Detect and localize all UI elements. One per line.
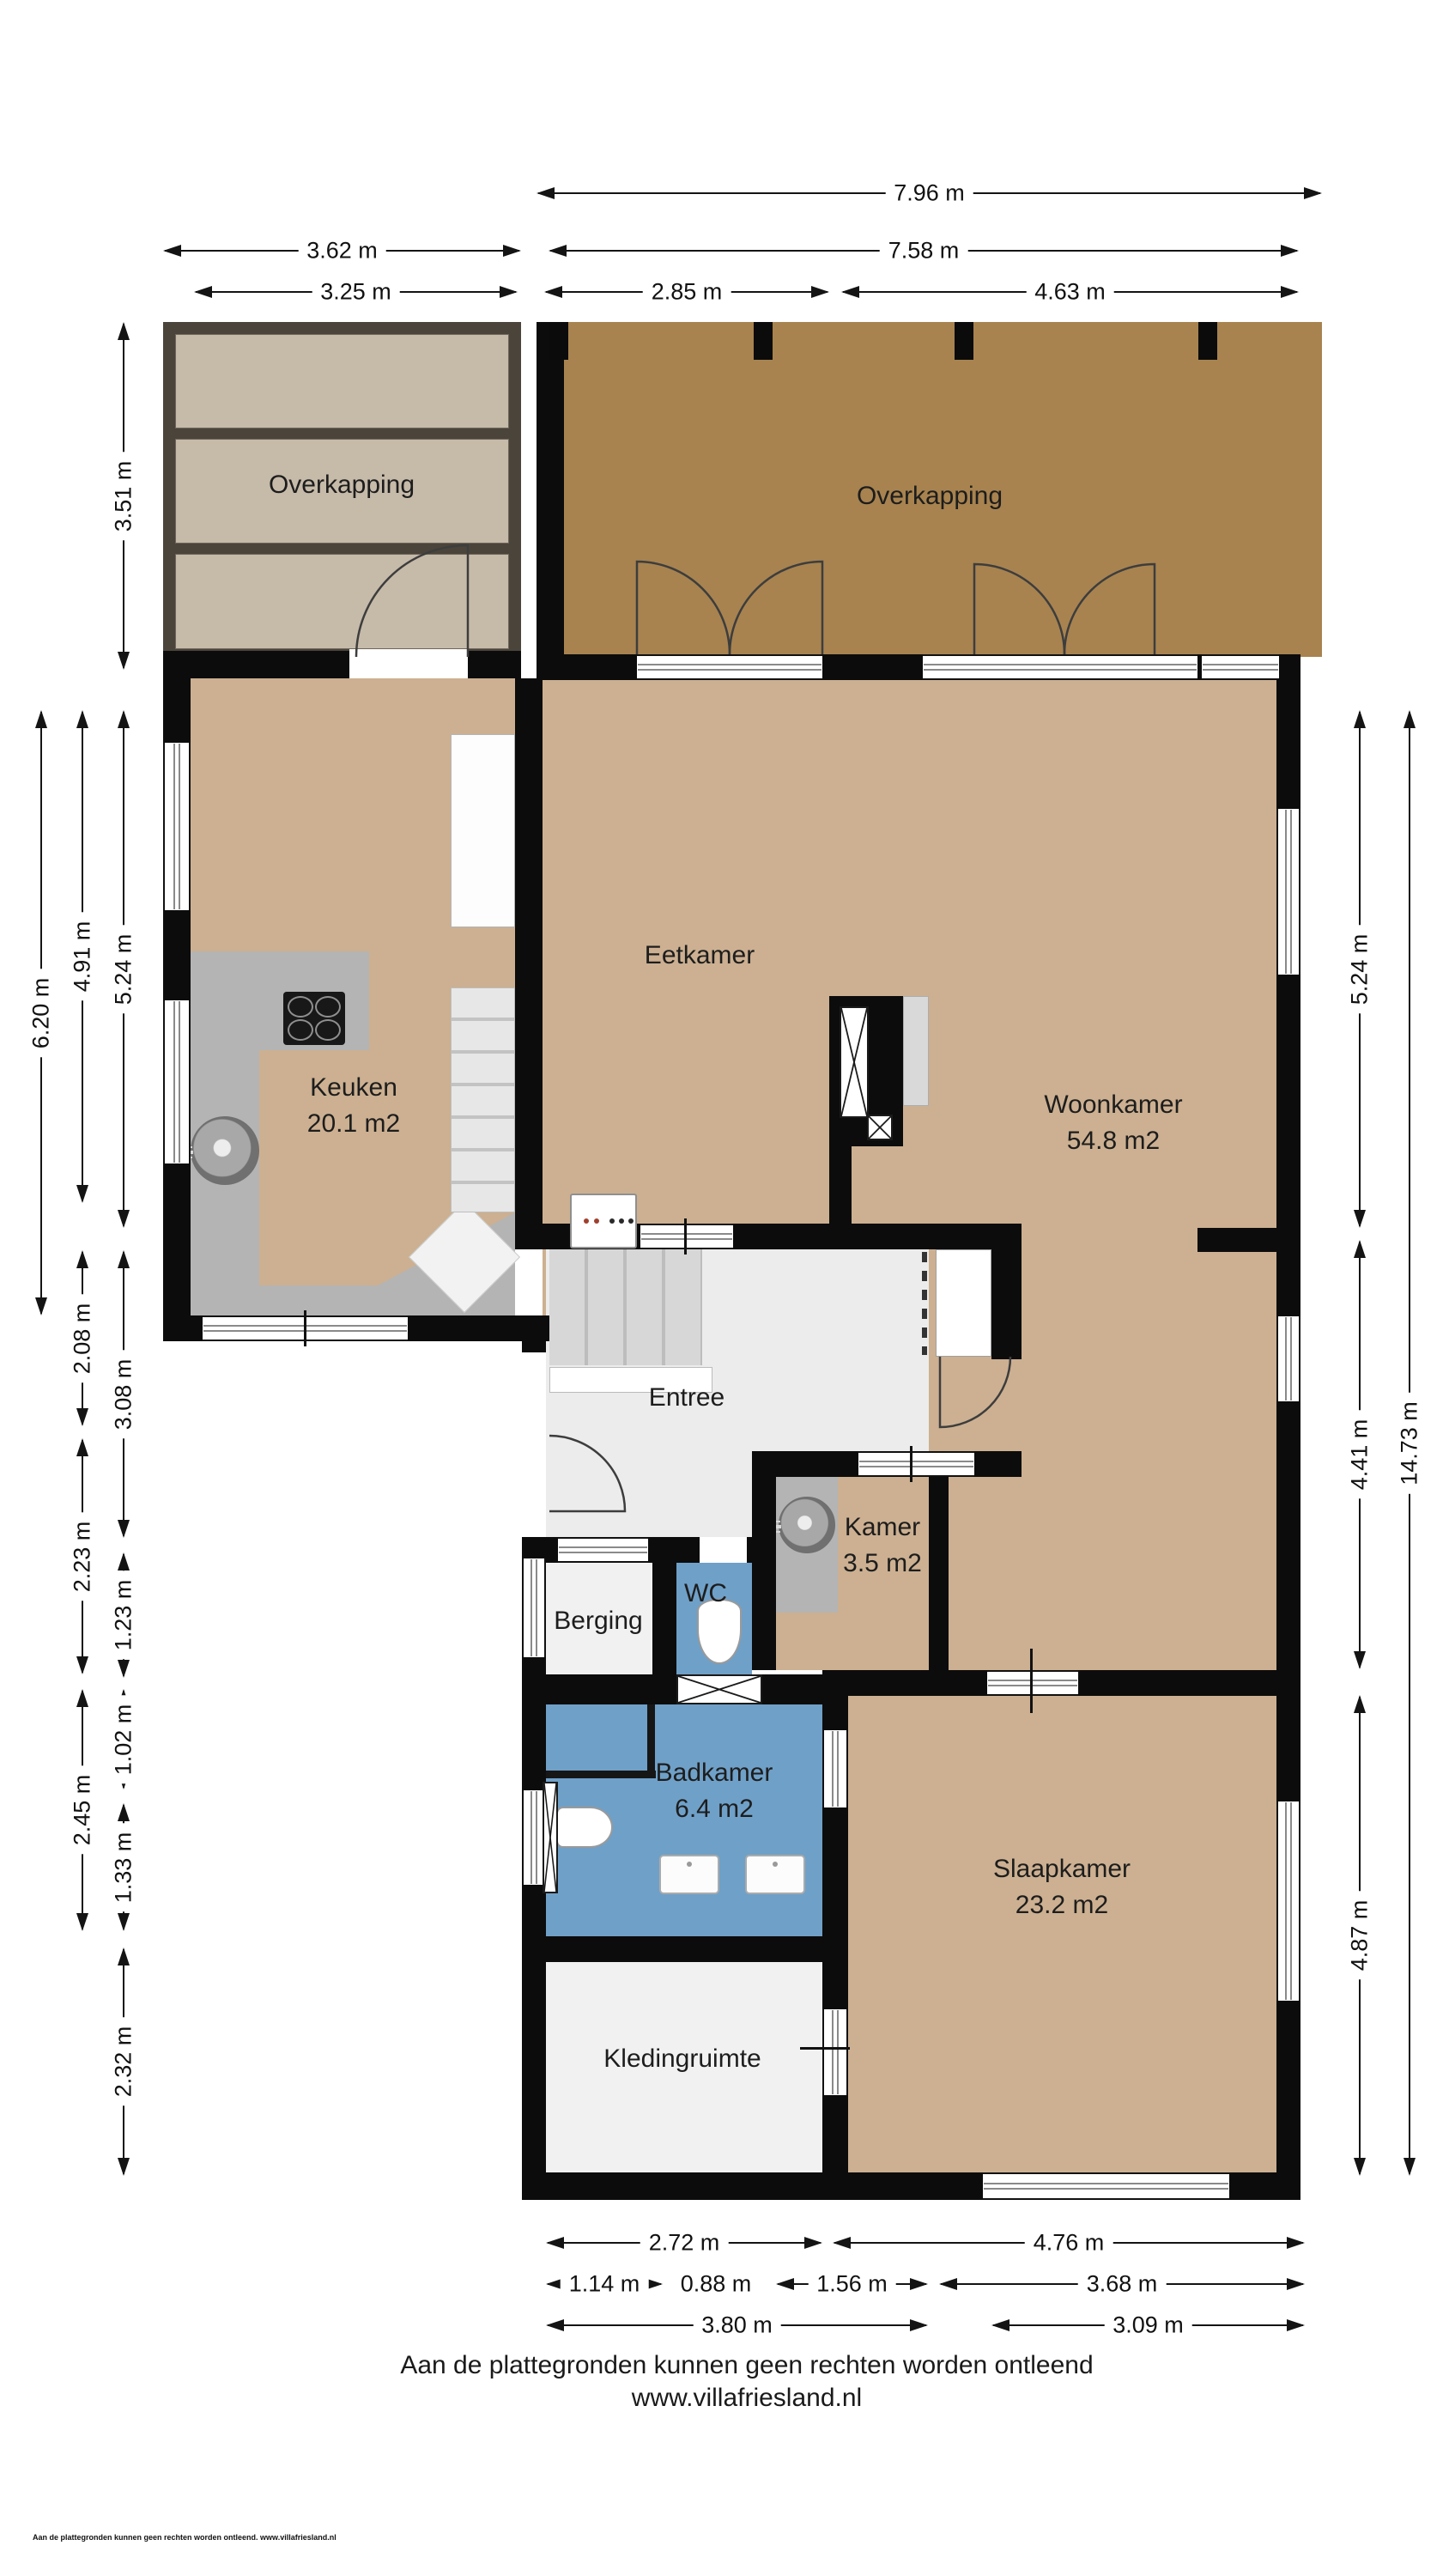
dimension: 3.62 m: [163, 239, 521, 263]
wall: [537, 322, 564, 654]
door-opening: [522, 1352, 546, 1537]
dimension: 7.58 m: [549, 239, 1299, 263]
dimension: 4.87 m: [1348, 1695, 1372, 2176]
burner: [288, 1019, 313, 1041]
shower-wall: [546, 1771, 656, 1778]
dim-label: 4.76 m: [1025, 2230, 1113, 2257]
dimension: 3.68 m: [939, 2272, 1305, 2296]
dimension: 2.32 m: [112, 1947, 136, 2176]
window: [822, 2009, 848, 2095]
window: [1276, 1316, 1300, 1401]
window: [163, 743, 191, 910]
window: [1276, 809, 1300, 975]
x-panel: [676, 1674, 762, 1704]
dim-label: 3.09 m: [1104, 2312, 1192, 2339]
dimension: 1.23 m: [112, 1552, 136, 1678]
window: [1276, 1801, 1300, 2001]
dim-label: 4.63 m: [1026, 279, 1114, 306]
dim-label: 6.20 m: [28, 969, 55, 1057]
dim-label: 5.24 m: [111, 925, 137, 1013]
dim-label: 1.23 m: [111, 1571, 137, 1660]
shower-wall: [647, 1696, 655, 1778]
dimension: 2.85 m: [544, 280, 829, 304]
staircase: [451, 987, 515, 1212]
dimension: 0.88 m: [674, 2272, 758, 2296]
window: [858, 1451, 974, 1477]
room-label-overkapping-right: Overkapping: [857, 478, 1003, 514]
dimension: 3.09 m: [991, 2313, 1305, 2337]
chimney-panel: [903, 996, 929, 1106]
window-mullion-tick: [1030, 1649, 1033, 1713]
dimension: 2.45 m: [70, 1689, 94, 1931]
floorplan: OverkappingOverkappingKeuken20.1 m2Eetka…: [0, 0, 1449, 2576]
overkapping-left-panel-1: [175, 334, 509, 428]
wall: [1197, 1228, 1300, 1252]
dimension: 1.02 m: [112, 1689, 136, 1789]
room-label-keuken: Keuken20.1 m2: [307, 1070, 400, 1142]
dim-label: 4.87 m: [1347, 1892, 1373, 1980]
sink: [191, 1116, 259, 1185]
dim-label: 2.32 m: [111, 2018, 137, 2106]
dim-label: 2.45 m: [70, 1766, 96, 1855]
room-label-berging: Berging: [554, 1603, 642, 1639]
window: [640, 1224, 733, 1249]
dim-label: 1.56 m: [808, 2271, 896, 2298]
dim-label: 14.73 m: [1397, 1393, 1423, 1494]
sliding-door: [922, 1252, 927, 1355]
room-label-kledingruimte: Kledingruimte: [603, 2041, 761, 2077]
room-label-wc: WC: [684, 1576, 727, 1612]
footer-disclaimer: Aan de plattegronden kunnen geen rechten…: [172, 2349, 1322, 2382]
room-label-overkapping-left: Overkapping: [269, 467, 415, 503]
window: [822, 1730, 848, 1807]
window: [923, 654, 1197, 680]
dimension: 1.33 m: [112, 1803, 136, 1931]
fineprint: Aan de plattegronden kunnen geen rechten…: [33, 2533, 336, 2542]
dimension: 4.76 m: [833, 2231, 1305, 2255]
toilet: [556, 1807, 613, 1848]
post: [549, 322, 568, 360]
wall: [522, 1674, 822, 1704]
dim-label: 1.33 m: [111, 1823, 137, 1911]
dim-label: 3.80 m: [693, 2312, 781, 2339]
sink: [779, 1497, 835, 1553]
dimension: 4.41 m: [1348, 1240, 1372, 1669]
window-mullion-tick: [910, 1446, 912, 1482]
x-panel: [840, 1006, 869, 1118]
footer: Aan de plattegronden kunnen geen rechten…: [172, 2349, 1322, 2415]
dimension: 2.23 m: [70, 1438, 94, 1674]
wall: [829, 1146, 852, 1224]
cooktop: [283, 992, 345, 1045]
window: [637, 654, 822, 680]
room-label-slaapkamer: Slaapkamer23.2 m2: [993, 1851, 1131, 1923]
wall: [522, 1936, 822, 1962]
post: [955, 322, 973, 360]
dimension: 3.08 m: [112, 1250, 136, 1538]
dim-label: 3.68 m: [1078, 2271, 1167, 2298]
room-entree-1: [752, 1249, 929, 1451]
dimension: 14.73 m: [1397, 710, 1422, 2176]
room-area-keuken: 20.1 m2: [307, 1106, 400, 1142]
dim-label: 4.41 m: [1347, 1411, 1373, 1499]
dimension: 1.56 m: [776, 2272, 928, 2296]
staircase: [549, 1249, 702, 1365]
door-opening: [349, 649, 468, 678]
room-label-eetkamer: Eetkamer: [645, 938, 755, 974]
window: [522, 1558, 546, 1657]
knob: [619, 1218, 624, 1224]
dim-label: 3.62 m: [298, 238, 386, 264]
wall: [652, 1563, 676, 1674]
room-area-kamer: 3.5 m2: [843, 1546, 922, 1582]
dim-label: 3.25 m: [312, 279, 400, 306]
window: [558, 1537, 648, 1563]
sideboard: [570, 1194, 637, 1249]
dim-label: 2.85 m: [643, 279, 731, 306]
room-label-kamer: Kamer3.5 m2: [843, 1510, 922, 1582]
dimension: 4.63 m: [841, 280, 1299, 304]
dimension: 2.72 m: [546, 2231, 822, 2255]
closet: [936, 1249, 991, 1357]
dimension: 5.24 m: [1348, 710, 1372, 1228]
knob: [609, 1218, 615, 1224]
room-slaapkamer: [848, 1696, 1276, 2172]
window: [163, 1000, 191, 1163]
floorplan-canvas: OverkappingOverkappingKeuken20.1 m2Eetka…: [0, 0, 1449, 2576]
room-label-badkamer: Badkamer6.4 m2: [656, 1755, 773, 1827]
dimension: 7.96 m: [537, 181, 1322, 205]
room-label-woonkamer: Woonkamer54.8 m2: [1044, 1087, 1182, 1159]
overkapping-left-panel-3: [175, 554, 509, 649]
dimension: 2.08 m: [70, 1250, 94, 1426]
dim-label: 7.96 m: [885, 180, 973, 207]
room-area-woonkamer: 54.8 m2: [1044, 1123, 1182, 1159]
x-panel: [543, 1782, 558, 1893]
burner: [288, 996, 313, 1018]
dimension: 6.20 m: [29, 710, 53, 1315]
fridge-cabinet: [451, 734, 515, 927]
footer-url: www.villafriesland.nl: [172, 2382, 1322, 2415]
window: [987, 1670, 1078, 1696]
window: [1202, 654, 1279, 680]
dim-label: 3.51 m: [111, 452, 137, 540]
dim-label: 1.02 m: [111, 1695, 137, 1783]
door-opening: [700, 1537, 747, 1563]
knob: [584, 1218, 589, 1224]
post: [1198, 322, 1217, 360]
wall: [991, 1224, 1022, 1359]
burner: [315, 996, 341, 1018]
dim-label: 0.88 m: [672, 2271, 761, 2298]
knob: [628, 1218, 634, 1224]
x-panel: [867, 1115, 893, 1140]
washbasin: [659, 1855, 719, 1894]
window-mullion-tick: [304, 1310, 306, 1346]
room-label-entree: Entree: [649, 1380, 724, 1416]
knob: [594, 1218, 599, 1224]
wall: [515, 678, 543, 1249]
dimension: 3.51 m: [112, 322, 136, 670]
dim-label: 7.58 m: [880, 238, 968, 264]
burner: [315, 1019, 341, 1041]
washbasin: [745, 1855, 805, 1894]
dim-label: 3.08 m: [111, 1350, 137, 1438]
window-mullion-tick: [684, 1218, 687, 1255]
dimension: 1.14 m: [546, 2272, 663, 2296]
post: [754, 322, 773, 360]
dim-label: 5.24 m: [1347, 925, 1373, 1013]
dimension: 5.24 m: [112, 710, 136, 1228]
dim-label: 4.91 m: [70, 913, 96, 1001]
dimension: 3.80 m: [546, 2313, 928, 2337]
dimension: 3.25 m: [194, 280, 518, 304]
room-area-slaapkamer: 23.2 m2: [993, 1887, 1131, 1923]
dim-label: 2.72 m: [640, 2230, 729, 2257]
window-mullion-tick: [800, 2047, 850, 2050]
dimension: 4.91 m: [70, 710, 94, 1203]
wall: [929, 1451, 949, 1670]
dim-label: 2.08 m: [70, 1294, 96, 1382]
window: [983, 2172, 1229, 2200]
dim-label: 2.23 m: [70, 1512, 96, 1601]
dim-label: 1.14 m: [561, 2271, 649, 2298]
room-area-badkamer: 6.4 m2: [656, 1791, 773, 1827]
